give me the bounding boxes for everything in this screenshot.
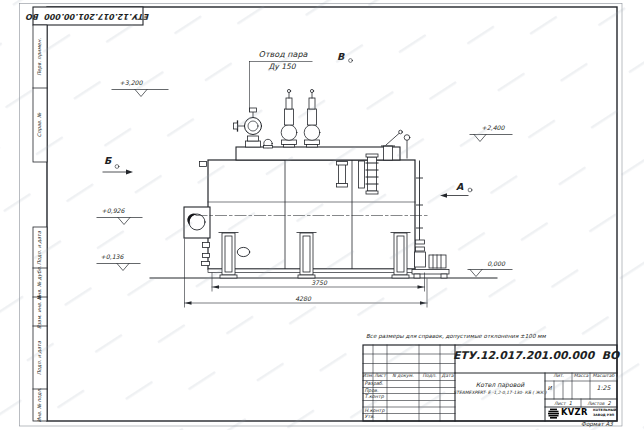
row-prov: Пров.	[365, 388, 379, 393]
scale-value: 1:25	[597, 385, 611, 392]
support-leg	[297, 233, 316, 279]
support-leg	[391, 233, 410, 279]
elevation-2400: +2,400	[482, 125, 505, 132]
sheets-total-cell: Листов 2	[581, 400, 617, 407]
sheets-value: 2	[607, 400, 610, 406]
row-tkontr: Т.контр	[365, 394, 384, 399]
header-col-ndoc: N докум.	[392, 374, 413, 379]
product-name-line2: STEAMEXPERT- Е -1,2-0,17-130- КБ ( ЖК )	[454, 391, 547, 396]
header-col-data: Дата	[442, 374, 454, 379]
row-razrab: Разраб.	[365, 381, 384, 386]
elevation-0136: +0,136	[101, 254, 124, 261]
kvzr-logo-text: KVZR	[561, 408, 588, 417]
general-note: Все размеры для справок, допустимые откл…	[366, 334, 546, 340]
margin-col-podp-data-1: Подп. и дата	[37, 230, 42, 264]
row-nkontr: Н.контр	[365, 408, 385, 413]
steam-outlet-callout-line2: Ду 150	[269, 63, 296, 71]
sheet-value: 1	[569, 400, 572, 406]
dimension-3750: 3750	[311, 280, 327, 287]
steam-outlet-callout-line1: Отвод пара	[259, 51, 308, 59]
lit-label: Лит.	[553, 374, 564, 379]
dimension-4280: 4280	[295, 296, 311, 303]
sheet-label: Лист	[554, 401, 566, 406]
mass-label: Масса	[574, 374, 589, 379]
header-col-podp: Подп.	[423, 374, 437, 379]
lit-value: И	[547, 386, 551, 392]
elevation-0000: 0,000	[487, 261, 505, 268]
scale-label: Масштаб	[593, 374, 615, 379]
view-label-a: А	[456, 182, 463, 192]
sight-glass	[337, 162, 348, 188]
product-name-line1: Котел паровой	[476, 382, 525, 389]
drawing-linework	[0, 0, 644, 430]
support-leg	[219, 233, 238, 279]
kvzr-logo-caption2: ЗАВОД РЭП	[593, 414, 614, 417]
sheets-label: Листов	[587, 401, 604, 406]
margin-col-sprav-no: Справ. №	[37, 113, 42, 137]
row-utv: Утв.	[365, 414, 375, 419]
elevation-3200: +3,200	[120, 80, 143, 87]
margin-col-perv-primen: Перв. примен.	[37, 38, 42, 76]
drawing-sheet: ЕТУ.12.017.201.00.000 ВО Перв. примен. С…	[0, 0, 644, 430]
drum-dome-fitting	[264, 139, 273, 148]
header-col-izm: Изм.	[363, 374, 374, 379]
manhole	[237, 247, 249, 256]
format-label: Формат А3	[581, 422, 613, 428]
margin-col-inv-podl: Инв. № подл.	[37, 388, 42, 423]
margin-col-vzam-inv: Взам. инв. №	[37, 295, 42, 329]
margin-col-podp-data-2: Подп. и дата	[37, 340, 42, 374]
title-doc-number: ЕТУ.12.017.201.00.000 ВО	[453, 350, 619, 361]
view-label-v: В	[337, 52, 344, 62]
header-col-list: Лист	[374, 374, 386, 379]
elevation-0926: +0,926	[102, 208, 125, 215]
top-stamp-doc-number: ЕТУ.12.017.201.00.000 ВО	[26, 12, 149, 20]
burner	[184, 207, 210, 238]
view-label-b: Б	[104, 156, 111, 166]
sheet-number-cell: Лист 1	[545, 400, 581, 407]
